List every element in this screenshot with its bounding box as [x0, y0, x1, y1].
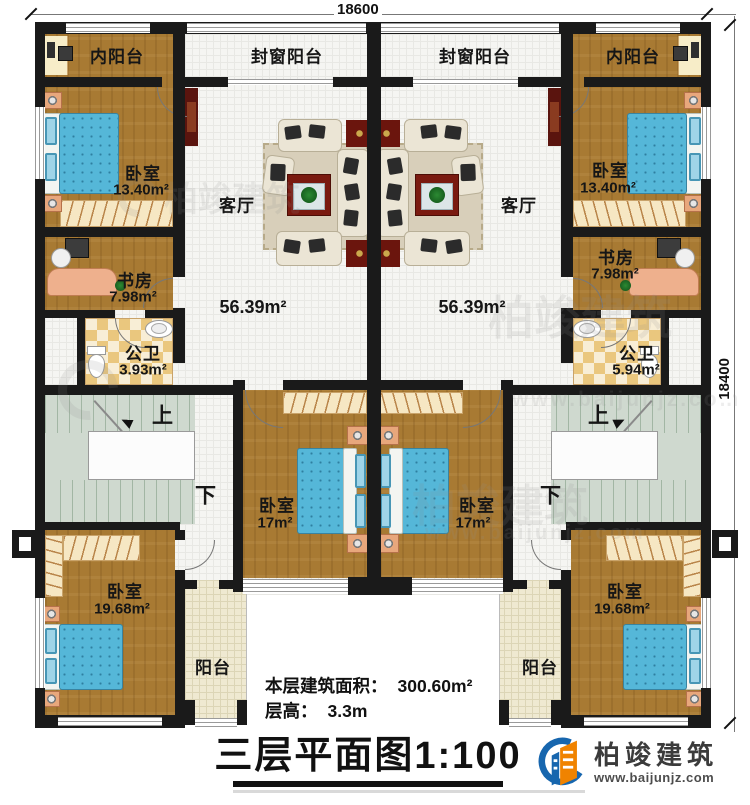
- nightstand: [43, 606, 60, 622]
- wall: [551, 700, 561, 725]
- wall: [631, 310, 711, 318]
- sofa-cushion: [460, 164, 476, 182]
- stair-treads: [60, 480, 195, 524]
- right-dimension-line: [734, 16, 735, 732]
- wall: [35, 522, 180, 530]
- bed-pillow: [689, 153, 701, 181]
- label-study-right: 书房: [598, 250, 634, 267]
- bed-pillow: [689, 628, 701, 654]
- tv-screen: [187, 102, 196, 132]
- wall: [501, 380, 513, 390]
- label-stairs-up-left: 上: [152, 406, 174, 427]
- wall: [237, 700, 247, 725]
- wall: [561, 22, 573, 277]
- wall: [173, 22, 185, 277]
- brand-website: www.baijunjz.com: [594, 770, 718, 786]
- bed-pillow: [355, 454, 366, 488]
- nightstand: [43, 195, 62, 212]
- sofa: [276, 231, 342, 266]
- label-bedroom-bottom-right: 卧室: [607, 584, 643, 601]
- nightstand: [347, 534, 368, 553]
- bed-pillow: [45, 153, 57, 181]
- top-dimension-value: 18600: [334, 1, 382, 18]
- window: [413, 79, 518, 85]
- label-bathroom-right: 公卫: [619, 346, 655, 363]
- window: [380, 23, 559, 33]
- brand-logo: 柏竣建筑 www.baijunjz.com: [538, 735, 718, 791]
- wall: [503, 380, 513, 592]
- window: [66, 23, 150, 33]
- label-stairs-down-left: 下: [195, 486, 217, 507]
- nightstand: [43, 691, 60, 707]
- area-study-right: 7.98m²: [591, 267, 639, 282]
- wall: [283, 380, 367, 390]
- brand-name: 柏竣建筑: [594, 740, 718, 770]
- sofa: [404, 119, 468, 152]
- wardrobe: [683, 535, 701, 597]
- sink-basin: [151, 323, 167, 334]
- wardrobe: [573, 200, 686, 227]
- bed-pillow: [689, 117, 701, 145]
- brand-logo-icon: [538, 735, 586, 791]
- exterior-column: [712, 530, 738, 558]
- area-living-right: 56.39m²: [438, 298, 505, 316]
- area-living-left: 56.39m²: [219, 298, 286, 316]
- label-bedroom-mid-right: 卧室: [459, 498, 495, 515]
- wardrobe: [379, 392, 463, 414]
- area-bedroom-top-left: 13.40m²: [113, 183, 169, 198]
- bed-pillow: [45, 628, 57, 654]
- study-desk: [629, 268, 699, 296]
- wardrobe: [283, 392, 367, 414]
- balcony-appliance: [691, 42, 699, 58]
- wall: [145, 310, 185, 318]
- title-underline-light: [233, 790, 585, 793]
- window: [187, 23, 366, 33]
- area-bedroom-mid-left: 17m²: [257, 516, 292, 531]
- label-bathroom-left: 公卫: [125, 346, 161, 363]
- wall: [35, 77, 162, 87]
- sofa-cushion: [420, 238, 437, 253]
- nightstand: [378, 534, 399, 553]
- study-desk: [47, 268, 117, 296]
- window: [701, 598, 711, 688]
- nightstand: [43, 92, 62, 109]
- label-stairs-down-right: 下: [540, 486, 562, 507]
- balcony-window: [509, 718, 551, 727]
- wall: [584, 77, 711, 87]
- sofa-cushion: [283, 239, 301, 254]
- top-dimension-line: [30, 14, 736, 15]
- wall: [233, 380, 245, 390]
- floor-plan-canvas: 18600 18400: [0, 0, 750, 805]
- wardrobe: [45, 535, 63, 597]
- floor-height-value: 3.3m: [328, 699, 368, 724]
- wall: [175, 530, 185, 540]
- label-inner-balcony-left: 内阳台: [90, 49, 144, 66]
- bed: [297, 448, 345, 534]
- balcony-appliance: [673, 46, 688, 61]
- wall: [35, 227, 185, 237]
- wardrobe: [606, 535, 683, 561]
- sofa-cushion: [284, 125, 302, 140]
- balcony-appliance: [58, 46, 73, 61]
- wall: [175, 570, 185, 728]
- wall: [35, 385, 243, 395]
- title-underline: [233, 781, 503, 787]
- window: [701, 107, 711, 179]
- bed-headboard: [389, 448, 403, 534]
- balcony-rail: [499, 580, 500, 703]
- wall: [185, 580, 197, 589]
- desk-chair: [51, 248, 71, 268]
- sofa-cushion: [445, 239, 463, 254]
- sofa: [278, 119, 342, 152]
- desk-chair: [675, 248, 695, 268]
- wall: [333, 77, 367, 87]
- wall: [661, 318, 669, 385]
- wall: [561, 227, 711, 237]
- bed: [59, 624, 123, 690]
- bed-pillow: [45, 658, 57, 684]
- stair-landing: [88, 431, 195, 480]
- label-balcony-left: 阳台: [195, 660, 231, 677]
- bed: [623, 624, 687, 690]
- wall: [518, 77, 561, 87]
- bed-pillow: [380, 494, 391, 528]
- wall: [566, 522, 711, 530]
- nightstand: [347, 426, 368, 445]
- label-sealed-balcony-left: 封窗阳台: [251, 49, 323, 66]
- window: [584, 717, 688, 726]
- label-balcony-right: 阳台: [522, 660, 558, 677]
- wall: [499, 700, 509, 725]
- sofa-cushion: [343, 157, 360, 175]
- sofa-cushion: [420, 124, 437, 139]
- wardrobe: [63, 535, 140, 561]
- window: [596, 23, 680, 33]
- wall: [561, 530, 571, 540]
- label-bedroom-top-left: 卧室: [125, 166, 161, 183]
- window: [35, 107, 45, 179]
- bed-pillow: [689, 658, 701, 684]
- wall: [77, 318, 85, 385]
- bed-pillow: [45, 117, 57, 145]
- area-study-left: 7.98m²: [109, 290, 157, 305]
- balcony-appliance: [47, 42, 55, 58]
- sofa-cushion: [308, 124, 325, 139]
- window: [58, 717, 162, 726]
- bed: [401, 448, 449, 534]
- bed: [627, 113, 687, 194]
- party-wall: [348, 577, 412, 595]
- floor-area-label: 本层建筑面积：: [265, 674, 388, 699]
- party-wall: [367, 22, 381, 595]
- window: [228, 79, 333, 85]
- unit-half: [373, 22, 711, 728]
- floor-height-label: 层高：: [265, 699, 318, 724]
- sofa-cushion: [270, 164, 286, 182]
- sink-basin: [579, 323, 595, 334]
- floor-area-value: 300.60m²: [398, 674, 473, 699]
- wardrobe: [60, 200, 173, 227]
- area-bedroom-mid-right: 17m²: [455, 516, 490, 531]
- sofa: [337, 149, 369, 237]
- wall: [379, 380, 463, 390]
- label-bedroom-mid-left: 卧室: [259, 498, 295, 515]
- bed-pillow: [380, 454, 391, 488]
- label-living-left: 客厅: [219, 198, 255, 215]
- balcony-window: [195, 718, 237, 727]
- stair-treads: [551, 480, 686, 524]
- wall: [185, 77, 228, 87]
- sofa: [404, 231, 470, 266]
- wall: [549, 580, 561, 589]
- wall: [233, 380, 243, 592]
- label-sealed-balcony-right: 封窗阳台: [439, 49, 511, 66]
- area-bathroom-left: 3.93m²: [119, 363, 167, 378]
- stair-landing: [551, 431, 658, 480]
- wall: [561, 570, 571, 728]
- sofa-cushion: [386, 183, 402, 201]
- area-bedroom-top-right: 13.40m²: [580, 181, 636, 196]
- sofa-cushion: [308, 238, 325, 253]
- label-stairs-up-right: 上: [588, 406, 610, 427]
- label-living-right: 客厅: [501, 198, 537, 215]
- nightstand: [378, 426, 399, 445]
- unit-half: [35, 22, 373, 728]
- bed-pillow: [355, 494, 366, 528]
- label-inner-balcony-right: 内阳台: [606, 49, 660, 66]
- sofa-cushion: [387, 157, 404, 175]
- wall: [503, 385, 711, 395]
- label-bedroom-top-right: 卧室: [592, 163, 628, 180]
- wall: [379, 77, 413, 87]
- right-dimension-value: 18400: [716, 355, 733, 403]
- plant: [429, 187, 445, 203]
- window: [35, 598, 45, 688]
- area-bedroom-bottom-left: 19.68m²: [94, 602, 150, 617]
- floor-stats: 本层建筑面积： 300.60m² 层高： 3.3m: [265, 674, 472, 724]
- label-bedroom-bottom-left: 卧室: [107, 584, 143, 601]
- sofa-cushion: [344, 183, 360, 201]
- wall: [185, 700, 195, 725]
- tv-screen: [550, 102, 559, 132]
- wall: [561, 310, 601, 318]
- sofa-cushion: [387, 209, 403, 226]
- area-bathroom-right: 5.94m²: [612, 363, 660, 378]
- label-study-left: 书房: [117, 273, 153, 290]
- bed: [59, 113, 119, 194]
- wall: [35, 310, 115, 318]
- sofa-cushion: [444, 125, 462, 140]
- sofa-cushion: [343, 209, 359, 226]
- plant: [301, 187, 317, 203]
- sofa: [377, 149, 409, 237]
- area-bedroom-bottom-right: 19.68m²: [594, 602, 650, 617]
